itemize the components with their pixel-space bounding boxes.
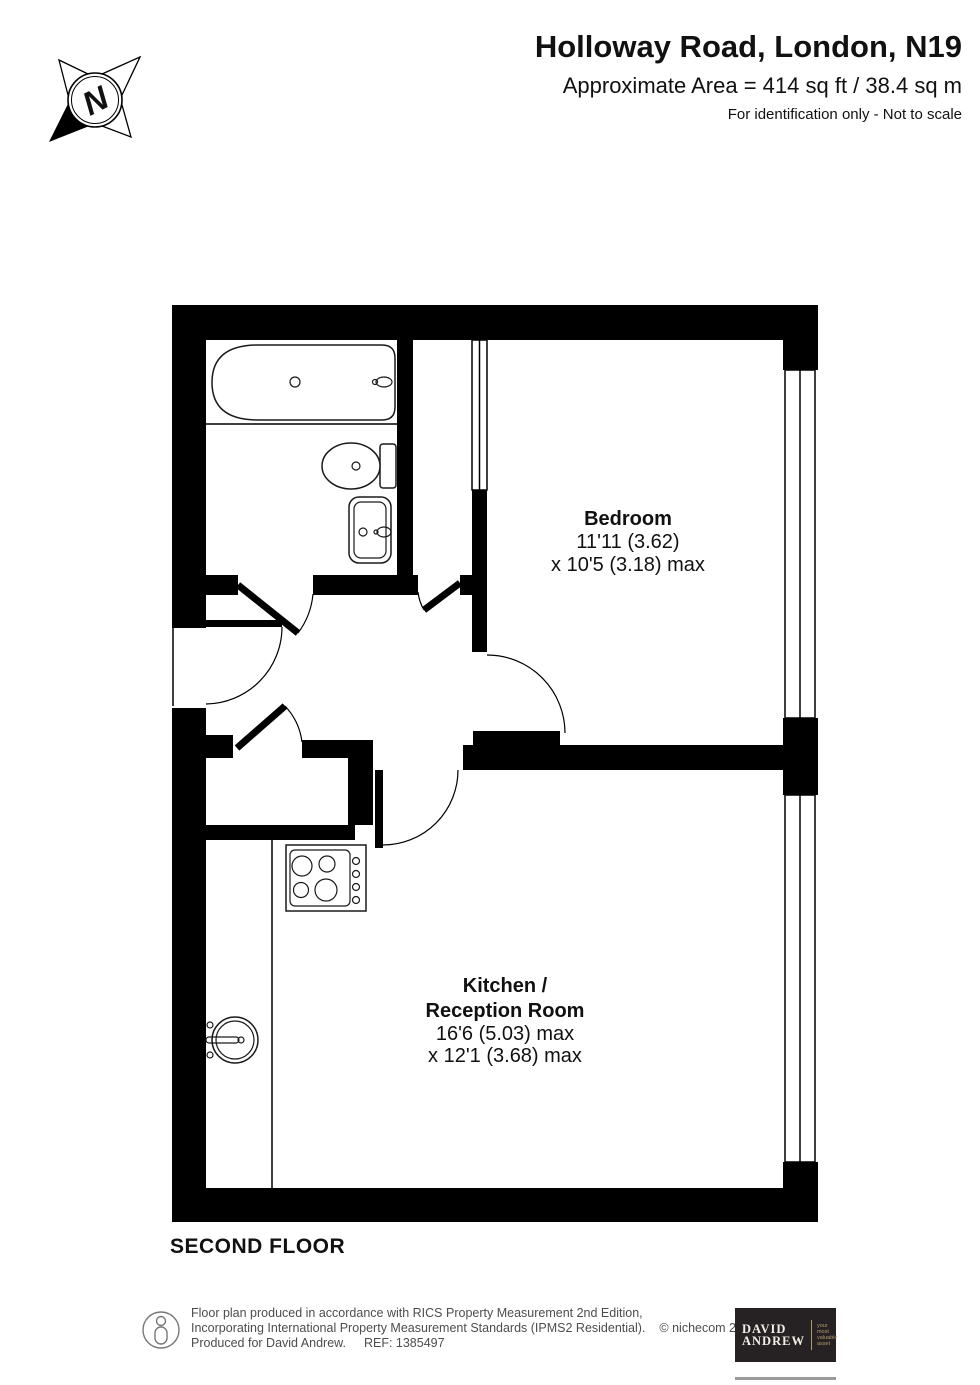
kitchen-dim2: x 12'1 (3.68) max: [428, 1045, 582, 1067]
kitchen-name-line1: Kitchen /: [463, 975, 548, 997]
footer-line1: Floor plan produced in accordance with R…: [191, 1306, 760, 1321]
bathtub-icon: [206, 345, 397, 424]
hob-icon: [286, 845, 366, 911]
bedroom-dim2: x 10'5 (3.18) max: [551, 554, 705, 576]
logo-name: DAVID ANDREW: [742, 1323, 805, 1347]
toilet-icon: [322, 443, 396, 489]
bedroom-dim1: 11'11 (3.62): [576, 531, 679, 553]
footer-line3: Produced for David Andrew.REF: 1385497: [191, 1336, 760, 1351]
logo-tagline: your most valuable asset: [817, 1323, 838, 1347]
window-glyph-reception: [785, 795, 815, 1162]
kitchen-dim1: 16'6 (5.03) max: [436, 1023, 574, 1045]
basin-icon: [349, 497, 391, 563]
window-glyph-bedroom: [785, 370, 815, 718]
floor-label: SECOND FLOOR: [170, 1235, 345, 1258]
bedroom-name: Bedroom: [584, 508, 672, 530]
compass-rose-icon: N: [50, 57, 140, 141]
door-arc-glyph-hall-cupboard: [237, 706, 302, 748]
logo-divider: [811, 1320, 812, 1350]
walls: [172, 305, 818, 1222]
door-arc-glyph-cupboard-top: [418, 583, 460, 610]
bedroom-label: Bedroom 11'11 (3.62) x 10'5 (3.18) max: [551, 508, 705, 576]
door-arc-glyph-entrance: [173, 620, 282, 706]
footer: Floor plan produced in accordance with R…: [141, 1306, 760, 1354]
logo-underline: [735, 1377, 836, 1380]
kitchen-name-line2: Reception Room: [426, 1000, 585, 1022]
floorplan-drawing: N: [0, 0, 980, 1385]
footer-line2: Incorporating International Property Mea…: [191, 1321, 760, 1336]
kitchen-reception-label: Kitchen / Reception Room 16'6 (5.03) max…: [426, 975, 585, 1067]
david-andrew-logo: DAVID ANDREW your most valuable asset: [735, 1308, 836, 1362]
door-arc-glyph-reception: [375, 770, 458, 848]
door-arc-glyph-bedroom: [487, 655, 565, 733]
footer-disclaimer-text: Floor plan produced in accordance with R…: [191, 1306, 760, 1351]
reference-number: REF: 1385497: [364, 1336, 445, 1350]
floorplan-page: Holloway Road, London, N19 Approximate A…: [0, 0, 980, 1385]
person-icon: [141, 1306, 181, 1354]
kitchen-sink-icon: [206, 1017, 258, 1063]
